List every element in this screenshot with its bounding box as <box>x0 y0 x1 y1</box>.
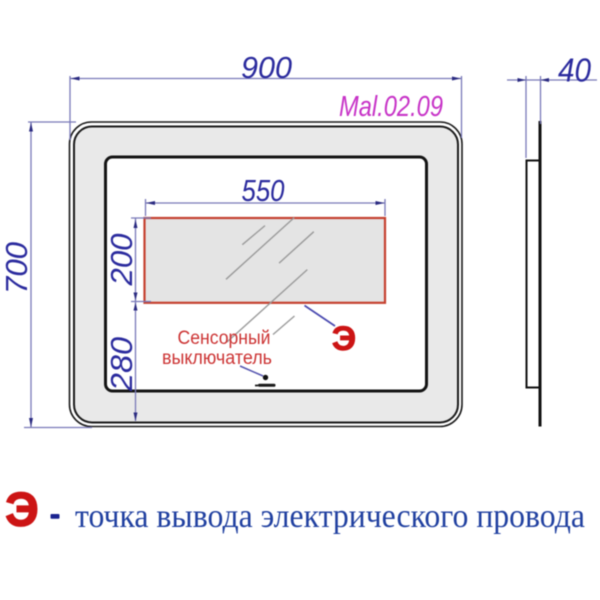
svg-text:Э: Э <box>6 483 39 536</box>
svg-text:точка вывода электрического пр: точка вывода электрического провода <box>75 498 585 535</box>
svg-text:700: 700 <box>0 242 34 294</box>
svg-text:Mal.02.09: Mal.02.09 <box>339 91 443 123</box>
svg-text:280: 280 <box>104 337 139 392</box>
svg-text:выключатель: выключатель <box>162 348 272 369</box>
svg-text:Сенсорный: Сенсорный <box>178 328 271 349</box>
svg-text:Э: Э <box>332 320 356 358</box>
svg-text:200: 200 <box>104 234 139 287</box>
svg-text:550: 550 <box>242 173 285 208</box>
svg-text:900: 900 <box>241 50 292 85</box>
svg-text:40: 40 <box>558 52 592 89</box>
